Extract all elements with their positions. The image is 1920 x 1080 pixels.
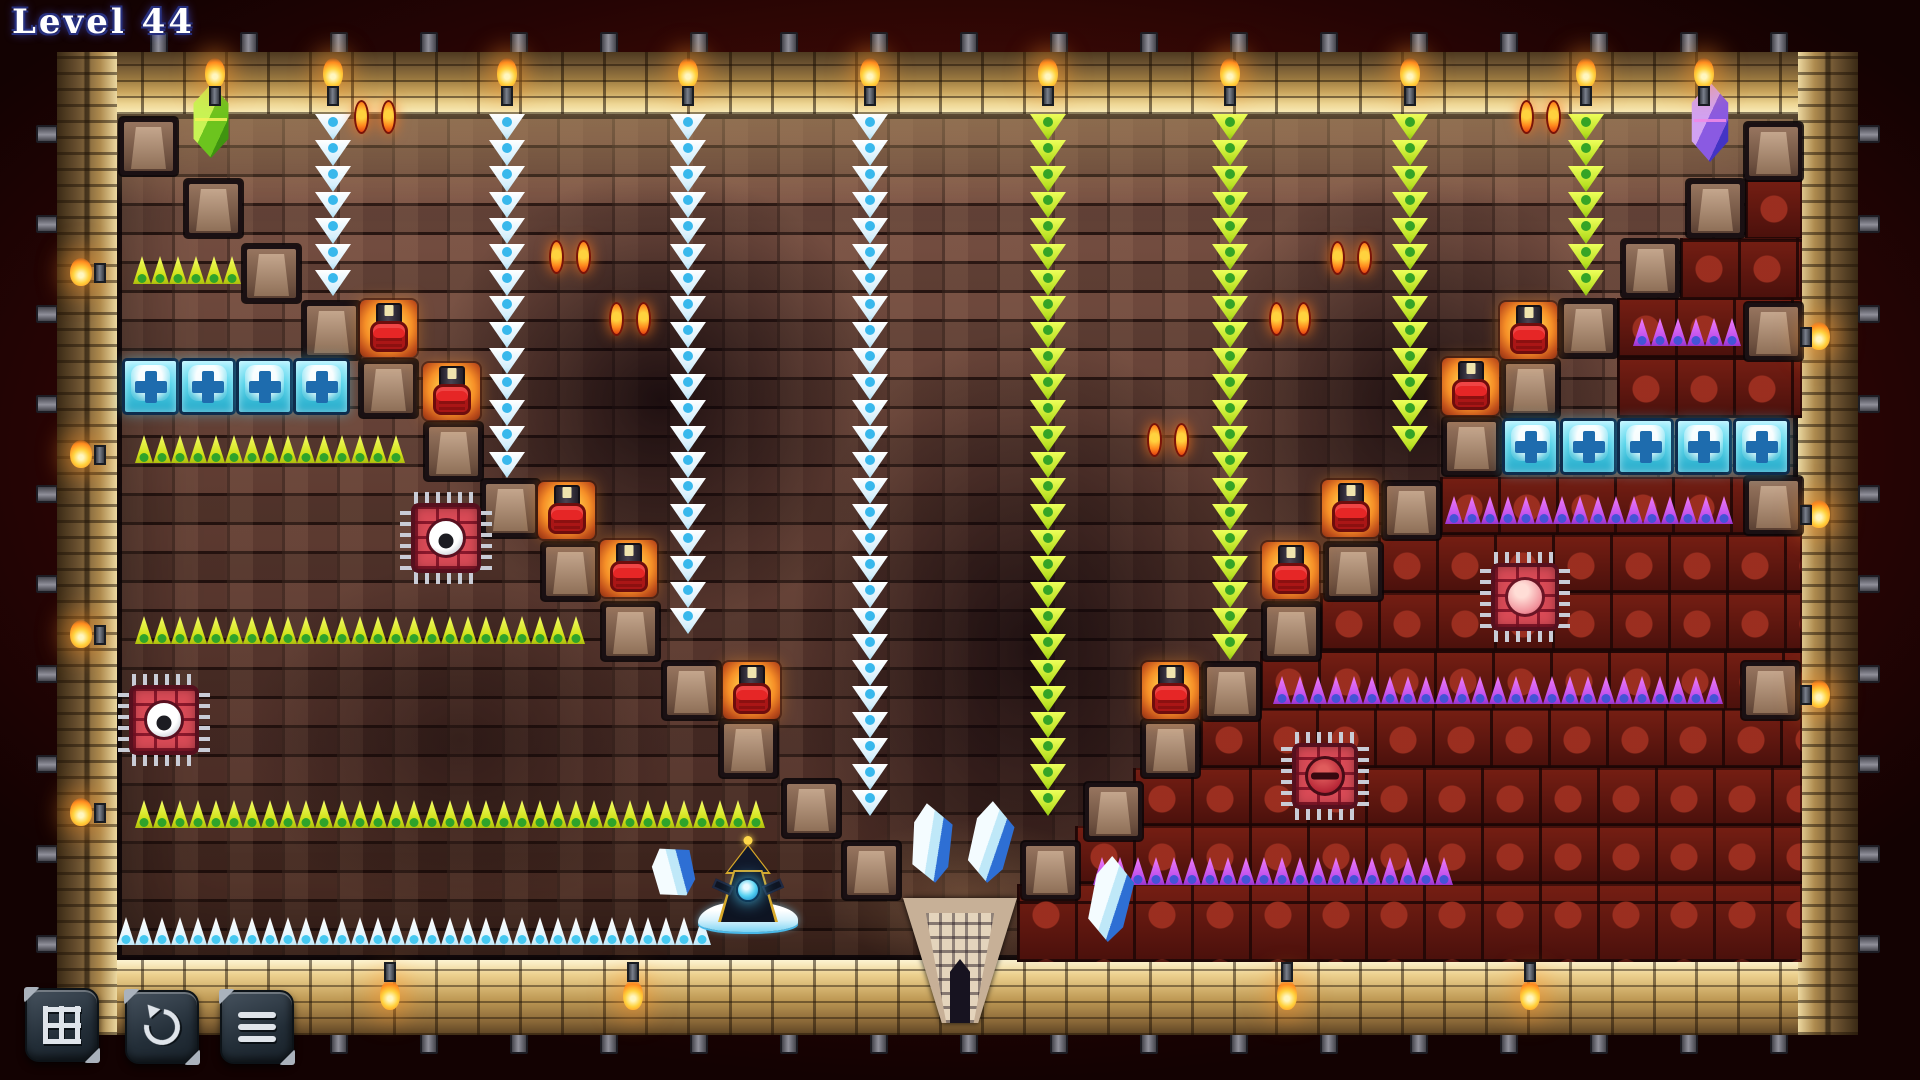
diamond-plus-icon — [1630, 441, 1662, 453]
spike — [333, 917, 351, 945]
gem-facet-line — [195, 118, 226, 121]
spike — [1435, 857, 1453, 885]
wall-peg — [1320, 1032, 1338, 1054]
chip-enemy — [400, 492, 492, 584]
spike-chevron — [1030, 712, 1066, 738]
wizard-topper — [744, 836, 753, 845]
spike-chevron — [852, 790, 888, 816]
menu-button[interactable] — [220, 990, 294, 1064]
glowing-eyes — [1147, 423, 1189, 459]
grid-button[interactable] — [25, 988, 99, 1062]
spike — [423, 616, 441, 644]
spike — [225, 917, 243, 945]
spike-chevron — [1212, 114, 1248, 140]
torch-mount — [384, 962, 396, 982]
spike — [1399, 857, 1417, 885]
spike — [585, 917, 603, 945]
spike — [459, 800, 477, 828]
wall-peg — [780, 32, 798, 54]
spike-chevron — [315, 192, 351, 218]
spike — [1543, 676, 1561, 704]
spike-chevron — [489, 244, 525, 270]
torch-flame-icon — [860, 58, 880, 88]
ice-diamond-block — [293, 358, 350, 415]
torch-flame-icon — [1576, 58, 1596, 88]
wizard-orb — [736, 878, 760, 902]
switch-bell — [733, 683, 771, 714]
spike-chevron — [852, 348, 888, 374]
spike — [1715, 496, 1733, 524]
wall-peg — [36, 665, 58, 683]
spike-chevron — [852, 634, 888, 660]
stone-block — [1263, 603, 1320, 660]
torch-flame-icon — [678, 58, 698, 88]
ice-diamond-block — [1733, 418, 1790, 475]
spike-chevron — [1568, 166, 1604, 192]
spike — [1381, 676, 1399, 704]
spike — [495, 616, 513, 644]
diamond-plus-icon — [1573, 441, 1605, 453]
spike — [567, 800, 585, 828]
spike — [513, 616, 531, 644]
stone-block — [720, 720, 777, 777]
wall-peg — [1858, 485, 1880, 503]
spike — [315, 435, 333, 463]
ice-diamond-block — [1560, 418, 1617, 475]
spike — [1345, 857, 1363, 885]
glowing-eyes — [354, 100, 396, 136]
spike-chevron — [670, 140, 706, 166]
spike — [1669, 676, 1687, 704]
red-switch-button — [423, 363, 480, 420]
spike-chevron — [315, 140, 351, 166]
restart-button[interactable] — [125, 990, 199, 1064]
chip-leg — [132, 754, 196, 766]
spike-chevron — [1030, 452, 1066, 478]
spike — [1219, 857, 1237, 885]
wall-peg — [1858, 575, 1880, 593]
wall-peg — [600, 1032, 618, 1054]
spike-chevron — [1030, 114, 1066, 140]
spike-chevron — [1212, 322, 1248, 348]
spike — [117, 917, 135, 945]
diamond-plus-icon — [249, 381, 281, 393]
ice-diamond-block — [179, 358, 236, 415]
spike — [243, 800, 261, 828]
stone-block — [542, 543, 599, 600]
torch-mount — [1524, 962, 1536, 982]
spike — [207, 800, 225, 828]
spike — [351, 435, 369, 463]
spike-chevron — [670, 582, 706, 608]
spike-chevron — [489, 400, 525, 426]
spike — [1553, 496, 1571, 524]
torch-mount — [94, 445, 106, 465]
stone-block — [185, 180, 242, 237]
torch-mount — [209, 86, 221, 106]
spike — [531, 917, 549, 945]
stone-block — [1745, 477, 1802, 534]
red-switch-button — [600, 540, 657, 597]
spike — [223, 256, 241, 284]
spike-column-ice — [315, 114, 351, 300]
spike — [1561, 676, 1579, 704]
diamond-plus-icon — [192, 381, 224, 393]
spike-chevron — [1568, 114, 1604, 140]
spike-chevron — [670, 400, 706, 426]
torch-mount — [1800, 505, 1812, 525]
spike — [1435, 676, 1453, 704]
spike — [405, 616, 423, 644]
wall-peg — [36, 305, 58, 323]
spike-chevron — [670, 296, 706, 322]
wall-peg — [420, 32, 438, 54]
spike — [387, 800, 405, 828]
spike — [1517, 496, 1535, 524]
switch-bell — [610, 561, 648, 592]
spike — [1597, 676, 1615, 704]
spike — [153, 616, 171, 644]
spike-chevron — [315, 270, 351, 296]
wall-peg — [420, 1032, 438, 1054]
torch-flame-icon — [1220, 58, 1240, 88]
spike-chevron — [670, 530, 706, 556]
wall-peg — [510, 32, 528, 54]
spike — [1165, 857, 1183, 885]
spike-chevron — [1030, 322, 1066, 348]
torch-flame-icon — [1277, 980, 1297, 1010]
red-switch-button — [1442, 358, 1499, 415]
spike-chevron — [852, 374, 888, 400]
spike-chevron — [1568, 192, 1604, 218]
spike — [621, 800, 639, 828]
switch-slot — [1524, 307, 1533, 318]
spike — [1661, 496, 1679, 524]
spike — [205, 256, 223, 284]
wall-peg — [36, 935, 58, 953]
wall-peg — [690, 32, 708, 54]
spike — [1327, 857, 1345, 885]
menu-icon — [238, 1012, 276, 1042]
spike-chevron — [489, 270, 525, 296]
spike — [1273, 676, 1291, 704]
wall-peg — [780, 1032, 798, 1054]
game-stage: Level 44 — [0, 0, 1920, 1080]
spike — [585, 800, 603, 828]
spike — [423, 917, 441, 945]
spike — [1345, 676, 1363, 704]
torch-flame-icon — [70, 258, 92, 286]
player-wizard — [715, 836, 781, 922]
spike-chevron — [1030, 348, 1066, 374]
spike — [243, 616, 261, 644]
wall-peg — [1858, 395, 1880, 413]
spike — [657, 800, 675, 828]
spike-chevron — [1030, 686, 1066, 712]
spike-chevron — [1212, 582, 1248, 608]
spike — [261, 616, 279, 644]
diamond-plus-icon — [135, 381, 167, 393]
spike-chevron — [670, 608, 706, 634]
torch-flame-icon — [497, 58, 517, 88]
spike-chevron — [852, 426, 888, 452]
spike-column-ice — [670, 114, 706, 658]
spike-chevron — [1212, 166, 1248, 192]
chip-enemy — [1281, 732, 1369, 820]
spike — [675, 917, 693, 945]
spike-chevron — [489, 192, 525, 218]
spike — [207, 616, 225, 644]
spike — [171, 616, 189, 644]
spike — [495, 917, 513, 945]
spike — [369, 435, 387, 463]
spike-chevron — [1392, 348, 1428, 374]
chip-eye — [1505, 577, 1545, 617]
spike — [153, 435, 171, 463]
spike — [189, 800, 207, 828]
spike — [1633, 676, 1651, 704]
spike-chevron — [1212, 270, 1248, 296]
stone-block — [1383, 482, 1440, 539]
exit-door — [903, 898, 1017, 1023]
spike — [675, 800, 693, 828]
torch-flame-icon — [70, 798, 92, 826]
spike-chevron — [1030, 608, 1066, 634]
spike-chevron — [1392, 400, 1428, 426]
spike-chevron — [1212, 504, 1248, 530]
spike-chevron — [1030, 634, 1066, 660]
spike — [261, 800, 279, 828]
switch-slot — [447, 368, 456, 379]
spike — [1697, 496, 1715, 524]
wall-peg — [1140, 1032, 1158, 1054]
spike-chevron — [1030, 140, 1066, 166]
spike-chevron — [852, 452, 888, 478]
stone-block — [1022, 842, 1079, 899]
spike — [135, 917, 153, 945]
spike — [459, 616, 477, 644]
stone-block — [243, 245, 300, 302]
chip-eye — [426, 518, 466, 558]
spike-chevron — [1030, 582, 1066, 608]
spike-chevron — [1212, 426, 1248, 452]
spike-chevron — [1392, 426, 1428, 452]
chip-pupil — [439, 533, 454, 548]
spike — [1363, 676, 1381, 704]
spike — [549, 616, 567, 644]
spike-chevron — [852, 114, 888, 140]
spike — [189, 616, 207, 644]
torch-mount — [627, 962, 639, 982]
spike-chevron — [1392, 322, 1428, 348]
switch-bell — [548, 503, 586, 534]
glowing-eyes — [609, 302, 651, 338]
diamond-plus-icon — [1688, 441, 1720, 453]
stone-block — [1203, 663, 1260, 720]
wall-peg — [600, 32, 618, 54]
wall-peg — [1410, 1032, 1428, 1054]
spike — [1417, 857, 1435, 885]
spike-chevron — [852, 400, 888, 426]
spike — [1489, 676, 1507, 704]
torch-mount — [1800, 685, 1812, 705]
spike-chevron — [1030, 166, 1066, 192]
red-switch-button — [1142, 662, 1199, 719]
spike-chevron — [1030, 374, 1066, 400]
spike — [369, 917, 387, 945]
wall-peg — [1590, 32, 1608, 54]
spike-chevron — [670, 218, 706, 244]
spike-chevron — [1568, 218, 1604, 244]
glowing-eyes — [549, 240, 591, 276]
wall-peg — [240, 32, 258, 54]
torch-flame-icon — [380, 980, 400, 1010]
spike — [315, 800, 333, 828]
torch-flame-icon — [1400, 58, 1420, 88]
wall-peg — [960, 1032, 978, 1054]
spike — [387, 917, 405, 945]
spike-chevron — [489, 166, 525, 192]
spike — [1525, 676, 1543, 704]
stone-block — [1622, 240, 1679, 297]
chip-pupil — [157, 715, 172, 730]
stone-block — [843, 842, 900, 899]
red-switch-button — [1262, 542, 1319, 599]
cracked-red-zone — [1680, 238, 1802, 300]
wall-peg — [1858, 755, 1880, 773]
switch-bell — [1510, 323, 1548, 354]
torch-mount — [1281, 962, 1293, 982]
wall-peg — [1230, 32, 1248, 54]
torch-flame-icon — [205, 58, 225, 88]
spike-chevron — [1392, 374, 1428, 400]
spike-chevron — [1568, 244, 1604, 270]
spike-chevron — [1212, 478, 1248, 504]
spike-chevron — [670, 114, 706, 140]
spike — [1255, 857, 1273, 885]
chip-leg — [1558, 566, 1570, 628]
chip-leg — [480, 506, 492, 570]
spike-row-green — [135, 435, 419, 463]
spike — [1723, 318, 1741, 346]
spike — [1309, 857, 1327, 885]
spike — [351, 616, 369, 644]
spike — [495, 800, 513, 828]
stone-block — [663, 662, 720, 719]
torch-flame-icon — [623, 980, 643, 1010]
spike-chevron — [852, 270, 888, 296]
spike-chevron — [852, 140, 888, 166]
diamond-plus-icon — [1515, 441, 1547, 453]
wall-peg — [1140, 32, 1158, 54]
spike — [297, 800, 315, 828]
spike — [225, 616, 243, 644]
spike — [441, 800, 459, 828]
spike-column-green — [1030, 114, 1066, 840]
spike-chevron — [1392, 270, 1428, 296]
spike — [243, 917, 261, 945]
spike — [729, 800, 747, 828]
wall-right — [1798, 52, 1858, 1035]
torch-mount — [1224, 86, 1236, 106]
spike — [513, 917, 531, 945]
torch-flame-icon — [1520, 980, 1540, 1010]
chip-enemy — [118, 674, 210, 766]
spike — [1651, 318, 1669, 346]
torch-mount — [94, 263, 106, 283]
spike — [1481, 496, 1499, 524]
spike — [567, 917, 585, 945]
stone-block — [360, 360, 417, 417]
spike — [1633, 318, 1651, 346]
spike-chevron — [489, 426, 525, 452]
stone-block — [602, 603, 659, 660]
stone-block — [425, 423, 482, 480]
wall-peg — [1770, 32, 1788, 54]
spike — [477, 616, 495, 644]
spike-chevron — [670, 166, 706, 192]
wall-peg — [36, 395, 58, 413]
spike-column-green — [1392, 114, 1428, 477]
spike-chevron — [670, 374, 706, 400]
spike-chevron — [1030, 192, 1066, 218]
chip-leg — [414, 572, 478, 584]
torch-mount — [864, 86, 876, 106]
spike — [1291, 676, 1309, 704]
wall-peg — [330, 1032, 348, 1054]
spike-chevron — [1392, 140, 1428, 166]
spike-chevron — [1030, 790, 1066, 816]
spike-chevron — [1568, 270, 1604, 296]
spike-chevron — [489, 348, 525, 374]
spike — [151, 256, 169, 284]
spike — [189, 917, 207, 945]
spike — [513, 800, 531, 828]
spike — [477, 800, 495, 828]
stone-block — [303, 302, 360, 359]
wall-peg — [1500, 32, 1518, 54]
spike — [1463, 496, 1481, 524]
chip-eye — [144, 700, 184, 740]
torch-mount — [501, 86, 513, 106]
spike-chevron — [852, 608, 888, 634]
spike-chevron — [1030, 530, 1066, 556]
spike — [297, 435, 315, 463]
grid-icon — [43, 1006, 81, 1044]
switch-slot — [1466, 363, 1475, 374]
spike-row-purple — [1273, 676, 1739, 704]
spike — [639, 800, 657, 828]
wall-peg — [1858, 125, 1880, 143]
chip-eyelid — [1311, 773, 1339, 780]
spike-chevron — [1212, 530, 1248, 556]
spike — [315, 616, 333, 644]
switch-slot — [384, 305, 393, 316]
torch-mount — [1800, 327, 1812, 347]
spike-chevron — [852, 296, 888, 322]
spike-row-ice — [117, 917, 711, 945]
chip-leg — [1295, 808, 1355, 820]
wall-peg — [1680, 32, 1698, 54]
spike — [711, 800, 729, 828]
spike — [1705, 676, 1723, 704]
spike-chevron — [670, 504, 706, 530]
chip-eye — [1305, 756, 1345, 796]
spike-chevron — [1392, 244, 1428, 270]
spike — [1183, 857, 1201, 885]
spike — [747, 800, 765, 828]
chip-leg — [198, 688, 210, 752]
